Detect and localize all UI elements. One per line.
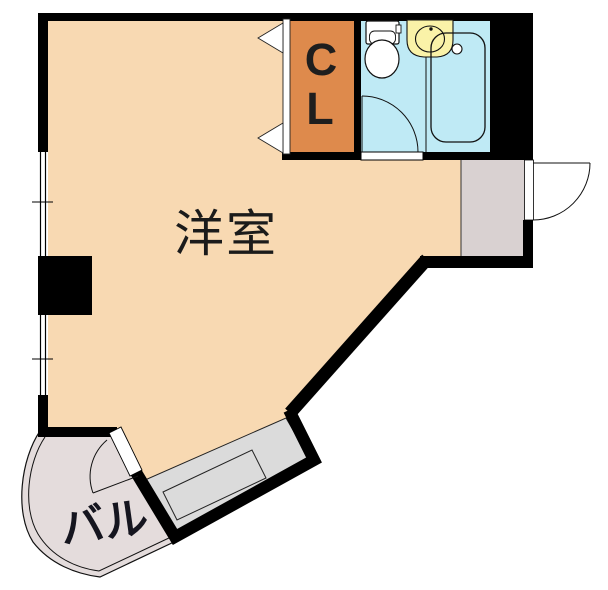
toilet-icon xyxy=(365,21,401,78)
wall-right-mass xyxy=(490,13,533,160)
wall-pillar xyxy=(38,256,92,315)
wall-bottom-left xyxy=(38,427,117,437)
wall-closet-right xyxy=(354,19,361,154)
bathroom-door-opening xyxy=(361,152,423,160)
wall-entry-bottom xyxy=(420,256,533,268)
main-room-label: 洋室 xyxy=(174,206,278,262)
wall-under-bath-right xyxy=(423,152,490,160)
wall-left-lower xyxy=(38,395,48,429)
wall-under-closet xyxy=(282,152,361,160)
floorplan-drawing: 洋室 C L バル xyxy=(0,0,608,590)
closet-label-l: L xyxy=(306,83,334,134)
wall-left-upper xyxy=(38,13,48,152)
closet-label-c: C xyxy=(305,34,338,85)
entry-door-arc xyxy=(533,163,590,220)
entry-door-opening xyxy=(525,160,534,220)
sink-icon xyxy=(407,20,453,57)
faucet-knob-icon xyxy=(452,44,462,54)
entry-floor xyxy=(461,158,525,256)
floorplan-canvas: 洋室 C L バル xyxy=(0,0,608,590)
